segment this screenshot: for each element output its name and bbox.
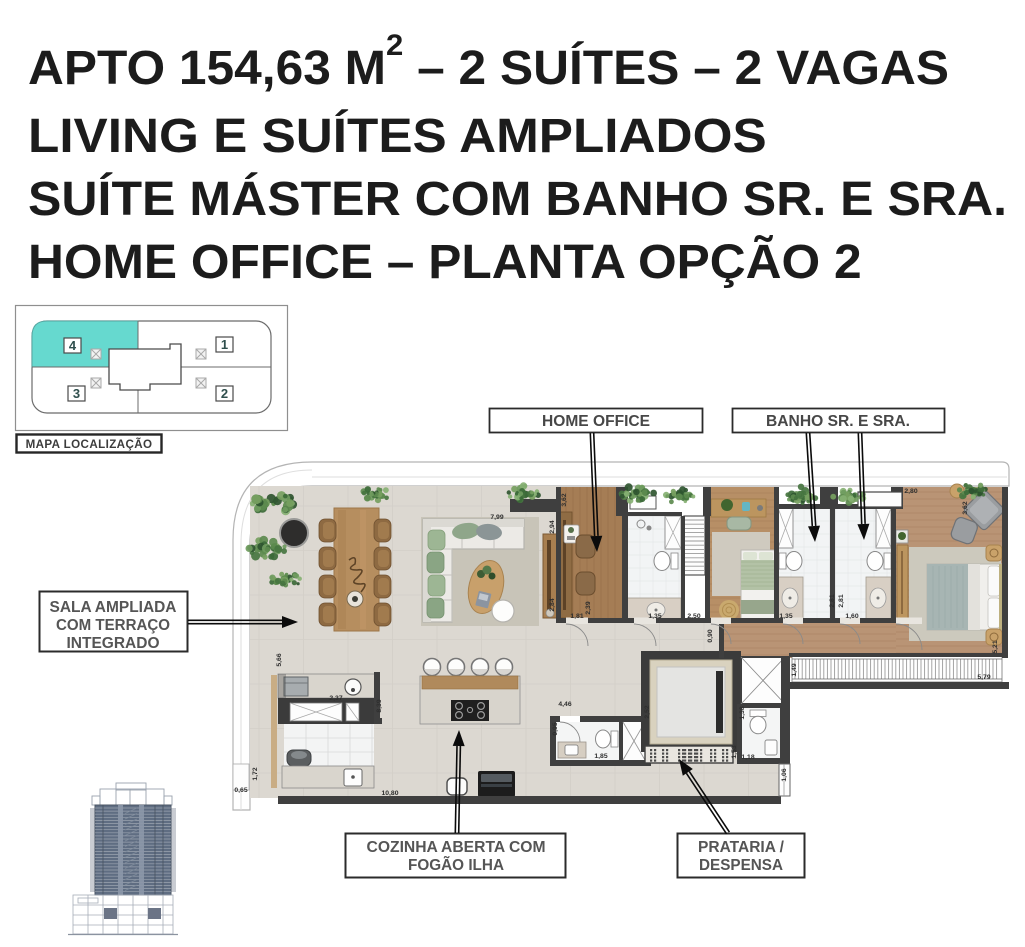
svg-text:PRATARIA /: PRATARIA / — [698, 839, 785, 856]
svg-text:INTEGRADO: INTEGRADO — [67, 635, 160, 652]
svg-text:SALA AMPLIADA: SALA AMPLIADA — [50, 599, 177, 616]
svg-text:7,99: 7,99 — [490, 514, 503, 521]
svg-text:0,90: 0,90 — [707, 629, 714, 642]
svg-text:2,81: 2,81 — [829, 594, 836, 607]
svg-text:0,65: 0,65 — [234, 787, 247, 794]
svg-text:1,72: 1,72 — [252, 767, 259, 780]
svg-text:2,94: 2,94 — [549, 520, 556, 533]
svg-text:5,79: 5,79 — [977, 674, 990, 681]
svg-text:8,39: 8,39 — [376, 699, 383, 712]
svg-text:1,35: 1,35 — [648, 613, 661, 620]
svg-text:DESPENSA: DESPENSA — [699, 857, 783, 874]
svg-text:2,39: 2,39 — [585, 601, 592, 614]
svg-text:2: 2 — [221, 386, 228, 401]
svg-text:2,81: 2,81 — [838, 594, 845, 607]
svg-text:MAPA LOCALIZAÇÃO: MAPA LOCALIZAÇÃO — [26, 438, 153, 451]
svg-text:1,49: 1,49 — [791, 663, 798, 676]
svg-text:1,35: 1,35 — [779, 613, 792, 620]
svg-text:1,38: 1,38 — [739, 706, 746, 719]
svg-text:3,62: 3,62 — [962, 501, 969, 514]
svg-text:2,84: 2,84 — [549, 598, 556, 611]
svg-text:COM TERRAÇO: COM TERRAÇO — [56, 617, 170, 634]
svg-text:COZINHA ABERTA COM: COZINHA ABERTA COM — [367, 839, 546, 856]
svg-text:1,06: 1,06 — [781, 768, 788, 781]
svg-text:HOME OFFICE: HOME OFFICE — [542, 413, 650, 430]
svg-text:3,62: 3,62 — [561, 493, 568, 506]
svg-text:4: 4 — [69, 338, 77, 353]
svg-text:1,81: 1,81 — [570, 613, 583, 620]
svg-text:10,80: 10,80 — [381, 790, 398, 797]
svg-text:1,18: 1,18 — [741, 754, 754, 761]
svg-text:1,53: 1,53 — [731, 745, 738, 758]
svg-text:2,80: 2,80 — [904, 488, 917, 495]
svg-text:4,46: 4,46 — [558, 701, 571, 708]
svg-text:2,52: 2,52 — [644, 705, 651, 718]
svg-text:5,66: 5,66 — [276, 653, 283, 666]
svg-text:1,85: 1,85 — [594, 753, 607, 760]
svg-text:1: 1 — [221, 337, 228, 352]
svg-text:FOGÃO ILHA: FOGÃO ILHA — [408, 856, 504, 874]
svg-text:2,50: 2,50 — [687, 613, 700, 620]
svg-text:0,95: 0,95 — [552, 722, 559, 735]
svg-text:3: 3 — [73, 386, 80, 401]
svg-text:1,60: 1,60 — [845, 613, 858, 620]
svg-text:5,21: 5,21 — [992, 640, 999, 653]
svg-text:2,37: 2,37 — [329, 695, 342, 702]
svg-text:BANHO SR. E SRA.: BANHO SR. E SRA. — [766, 413, 910, 430]
